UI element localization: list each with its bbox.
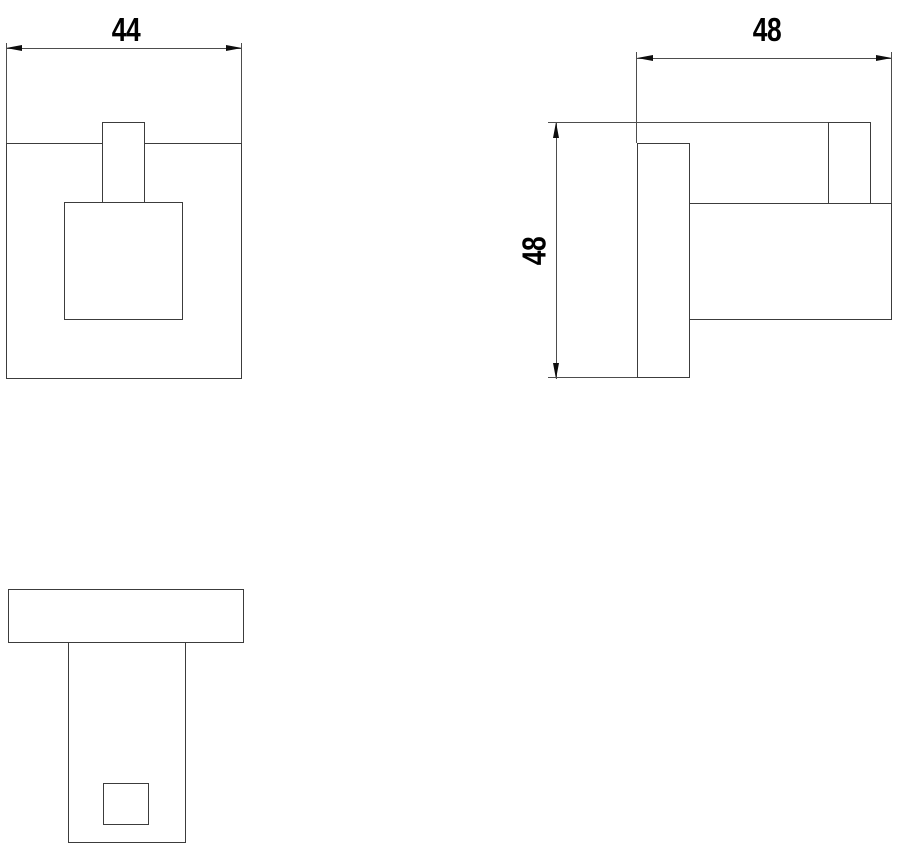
bottom-view: [0, 0, 900, 850]
bottom-wall-plate-outline: [8, 589, 244, 643]
bottom-hook-tip-outline: [103, 783, 149, 825]
drawing-canvas: 44 48 48: [0, 0, 900, 850]
